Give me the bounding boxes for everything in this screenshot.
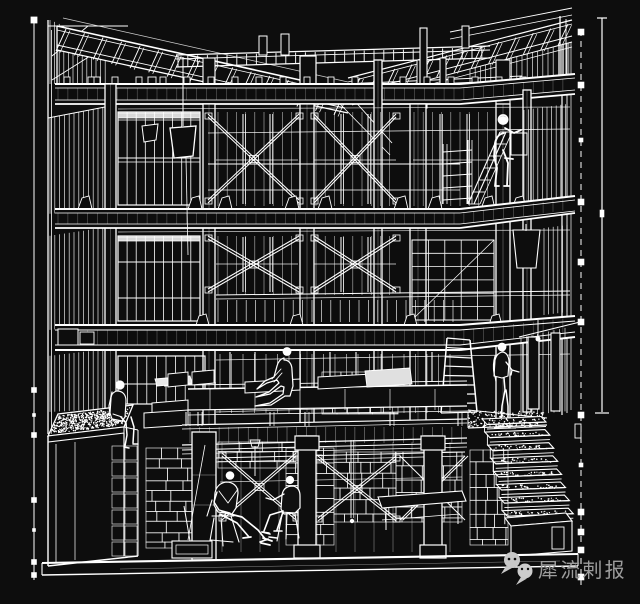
svg-text:犀流剌报: 犀流剌报 — [538, 559, 627, 582]
